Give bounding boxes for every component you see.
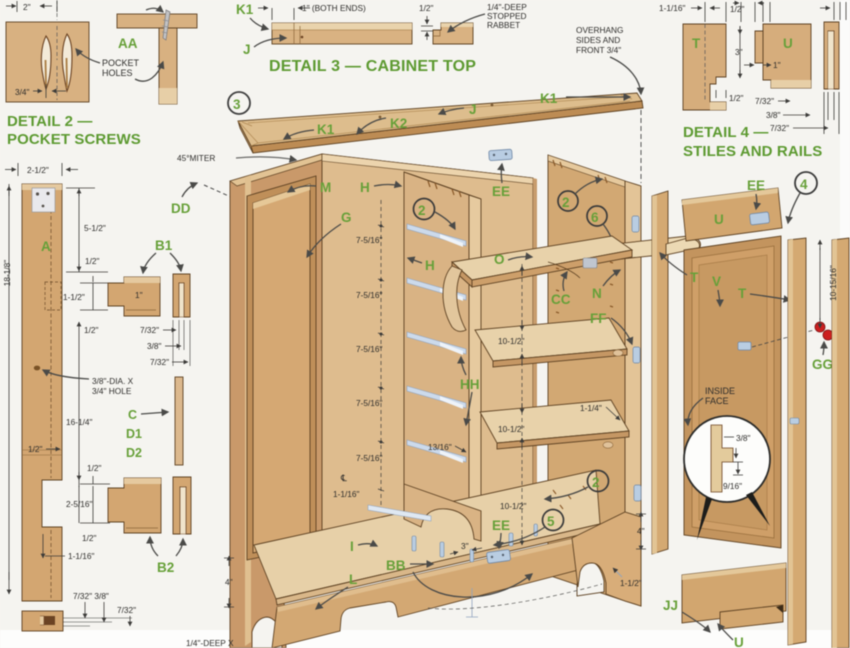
svg-text:9/16": 9/16": [723, 481, 742, 491]
svg-text:K1: K1: [540, 91, 558, 106]
svg-text:EE: EE: [492, 518, 510, 533]
svg-text:EE: EE: [492, 184, 510, 199]
svg-text:CC: CC: [551, 292, 571, 307]
svg-text:℄: ℄: [340, 473, 347, 483]
svg-text:K2: K2: [390, 116, 407, 131]
svg-text:1-1/16": 1-1/16": [333, 489, 360, 499]
svg-text:1/2": 1/2": [82, 533, 97, 543]
svg-text:2: 2: [418, 203, 426, 218]
svg-text:BB: BB: [386, 558, 406, 573]
svg-text:5-1/2": 5-1/2": [84, 223, 106, 233]
svg-text:RABBET: RABBET: [487, 20, 520, 30]
svg-text:J: J: [469, 102, 477, 117]
svg-text:3/8"-DIA. X: 3/8"-DIA. X: [92, 376, 134, 386]
svg-text:AA: AA: [118, 36, 138, 51]
svg-text:7/32": 7/32": [755, 96, 774, 106]
svg-text:10-1/2": 10-1/2": [498, 336, 525, 346]
svg-text:3/8": 3/8": [766, 110, 781, 120]
svg-text:1/2": 1/2": [85, 256, 100, 266]
svg-text:2-1/2": 2-1/2": [27, 165, 49, 175]
svg-text:2-5/16": 2-5/16": [66, 499, 93, 509]
svg-text:4": 4": [637, 526, 645, 536]
svg-text:I: I: [350, 539, 354, 554]
svg-text:4": 4": [225, 577, 233, 587]
svg-text:2: 2: [562, 195, 570, 210]
svg-text:1/2": 1/2": [729, 93, 744, 103]
svg-text:JJ: JJ: [663, 598, 678, 613]
svg-text:N: N: [592, 286, 602, 301]
svg-text:FRONT 3/4": FRONT 3/4": [576, 45, 621, 55]
svg-text:3/8": 3/8": [736, 433, 751, 443]
svg-text:STILES AND RAILS: STILES AND RAILS: [683, 143, 822, 160]
svg-text:7/32": 7/32": [770, 123, 789, 133]
svg-text:D1: D1: [126, 427, 142, 441]
svg-text:1-1/16": 1-1/16": [68, 551, 95, 561]
svg-text:J: J: [243, 42, 251, 57]
svg-text:7/32": 7/32": [117, 605, 136, 615]
svg-text:1-1/16": 1-1/16": [659, 3, 686, 13]
svg-text:1": 1": [135, 290, 143, 300]
svg-text:4: 4: [800, 177, 808, 192]
svg-text:B1: B1: [155, 238, 173, 253]
svg-text:DETAIL 4 —: DETAIL 4 —: [683, 124, 768, 141]
svg-text:U: U: [714, 212, 724, 227]
svg-text:L: L: [349, 572, 357, 587]
svg-text:O: O: [494, 252, 505, 267]
svg-text:7-5/16": 7-5/16": [356, 453, 383, 463]
svg-text:3": 3": [461, 541, 469, 551]
svg-text:U: U: [783, 36, 793, 51]
svg-text:1/4"-DEEP X: 1/4"-DEEP X: [186, 638, 234, 648]
svg-text:1/2": 1/2": [28, 444, 43, 454]
svg-text:C: C: [128, 408, 137, 422]
svg-text:7-5/16": 7-5/16": [356, 235, 383, 245]
svg-text:T: T: [690, 270, 699, 285]
svg-text:1-1/2": 1-1/2": [620, 578, 642, 588]
svg-text:3": 3": [735, 47, 743, 57]
svg-text:DETAIL 2 —: DETAIL 2 —: [7, 113, 92, 130]
svg-text:7/32": 7/32": [140, 325, 159, 335]
svg-text:V: V: [712, 274, 721, 289]
svg-text:HH: HH: [460, 377, 480, 392]
svg-text:7-5/16": 7-5/16": [356, 344, 383, 354]
svg-text:13/16": 13/16": [428, 442, 452, 452]
svg-text:POCKET SCREWS: POCKET SCREWS: [7, 131, 141, 148]
svg-text:H: H: [360, 180, 370, 195]
svg-text:M: M: [320, 180, 331, 195]
svg-text:7-5/16": 7-5/16": [356, 290, 383, 300]
svg-text:T: T: [692, 36, 701, 51]
svg-text:3/4": 3/4": [15, 87, 30, 97]
svg-text:7/32": 7/32": [150, 357, 169, 367]
svg-text:2: 2: [592, 475, 600, 490]
svg-text:GG: GG: [812, 357, 833, 372]
svg-text:INSIDE: INSIDE: [705, 386, 735, 396]
svg-text:45°MITER: 45°MITER: [177, 153, 215, 163]
svg-text:7/32" 3/8": 7/32" 3/8": [73, 591, 109, 601]
svg-text:HOLES: HOLES: [102, 68, 133, 78]
svg-text:10-1/2": 10-1/2": [498, 424, 525, 434]
svg-text:1": 1": [773, 60, 781, 70]
svg-text:EE: EE: [747, 178, 765, 193]
svg-text:6: 6: [591, 210, 599, 225]
svg-text:1-1/2": 1-1/2": [63, 292, 85, 302]
svg-text:H: H: [425, 258, 435, 273]
svg-text:DETAIL 3 — CABINET TOP: DETAIL 3 — CABINET TOP: [269, 58, 476, 75]
svg-text:POCKET: POCKET: [102, 58, 140, 68]
svg-text:3/4" HOLE: 3/4" HOLE: [92, 386, 132, 396]
svg-text:K1: K1: [236, 2, 254, 17]
svg-text:1/2": 1/2": [87, 463, 102, 473]
svg-text:B2: B2: [157, 560, 174, 575]
svg-text:SIDES AND: SIDES AND: [576, 35, 620, 45]
svg-text:T: T: [738, 286, 747, 301]
svg-text:18-1/8": 18-1/8": [2, 260, 12, 287]
svg-text:1/2": 1/2": [84, 325, 99, 335]
svg-text:2": 2": [23, 2, 31, 12]
svg-text:1/2": 1/2": [419, 3, 434, 13]
svg-text:FACE: FACE: [705, 396, 729, 406]
svg-text:G: G: [341, 210, 352, 225]
svg-text:5: 5: [547, 514, 555, 529]
svg-text:FF: FF: [590, 311, 607, 326]
svg-text:K1: K1: [317, 122, 335, 137]
svg-text:1" (BOTH ENDS): 1" (BOTH ENDS): [302, 3, 366, 13]
svg-text:DD: DD: [171, 201, 191, 216]
svg-text:16-1/4": 16-1/4": [66, 417, 93, 427]
svg-text:OVERHANG: OVERHANG: [576, 25, 623, 35]
svg-text:U: U: [734, 635, 744, 648]
svg-text:D2: D2: [126, 446, 142, 460]
svg-text:10-15/16": 10-15/16": [828, 265, 838, 301]
svg-text:3: 3: [233, 97, 241, 112]
svg-text:3/8": 3/8": [147, 341, 162, 351]
svg-text:A: A: [41, 239, 51, 254]
svg-text:1-1/4": 1-1/4": [580, 403, 602, 413]
svg-text:7-5/16": 7-5/16": [356, 398, 383, 408]
svg-text:1/2": 1/2": [730, 4, 745, 14]
svg-text:10-1/2": 10-1/2": [500, 501, 527, 511]
